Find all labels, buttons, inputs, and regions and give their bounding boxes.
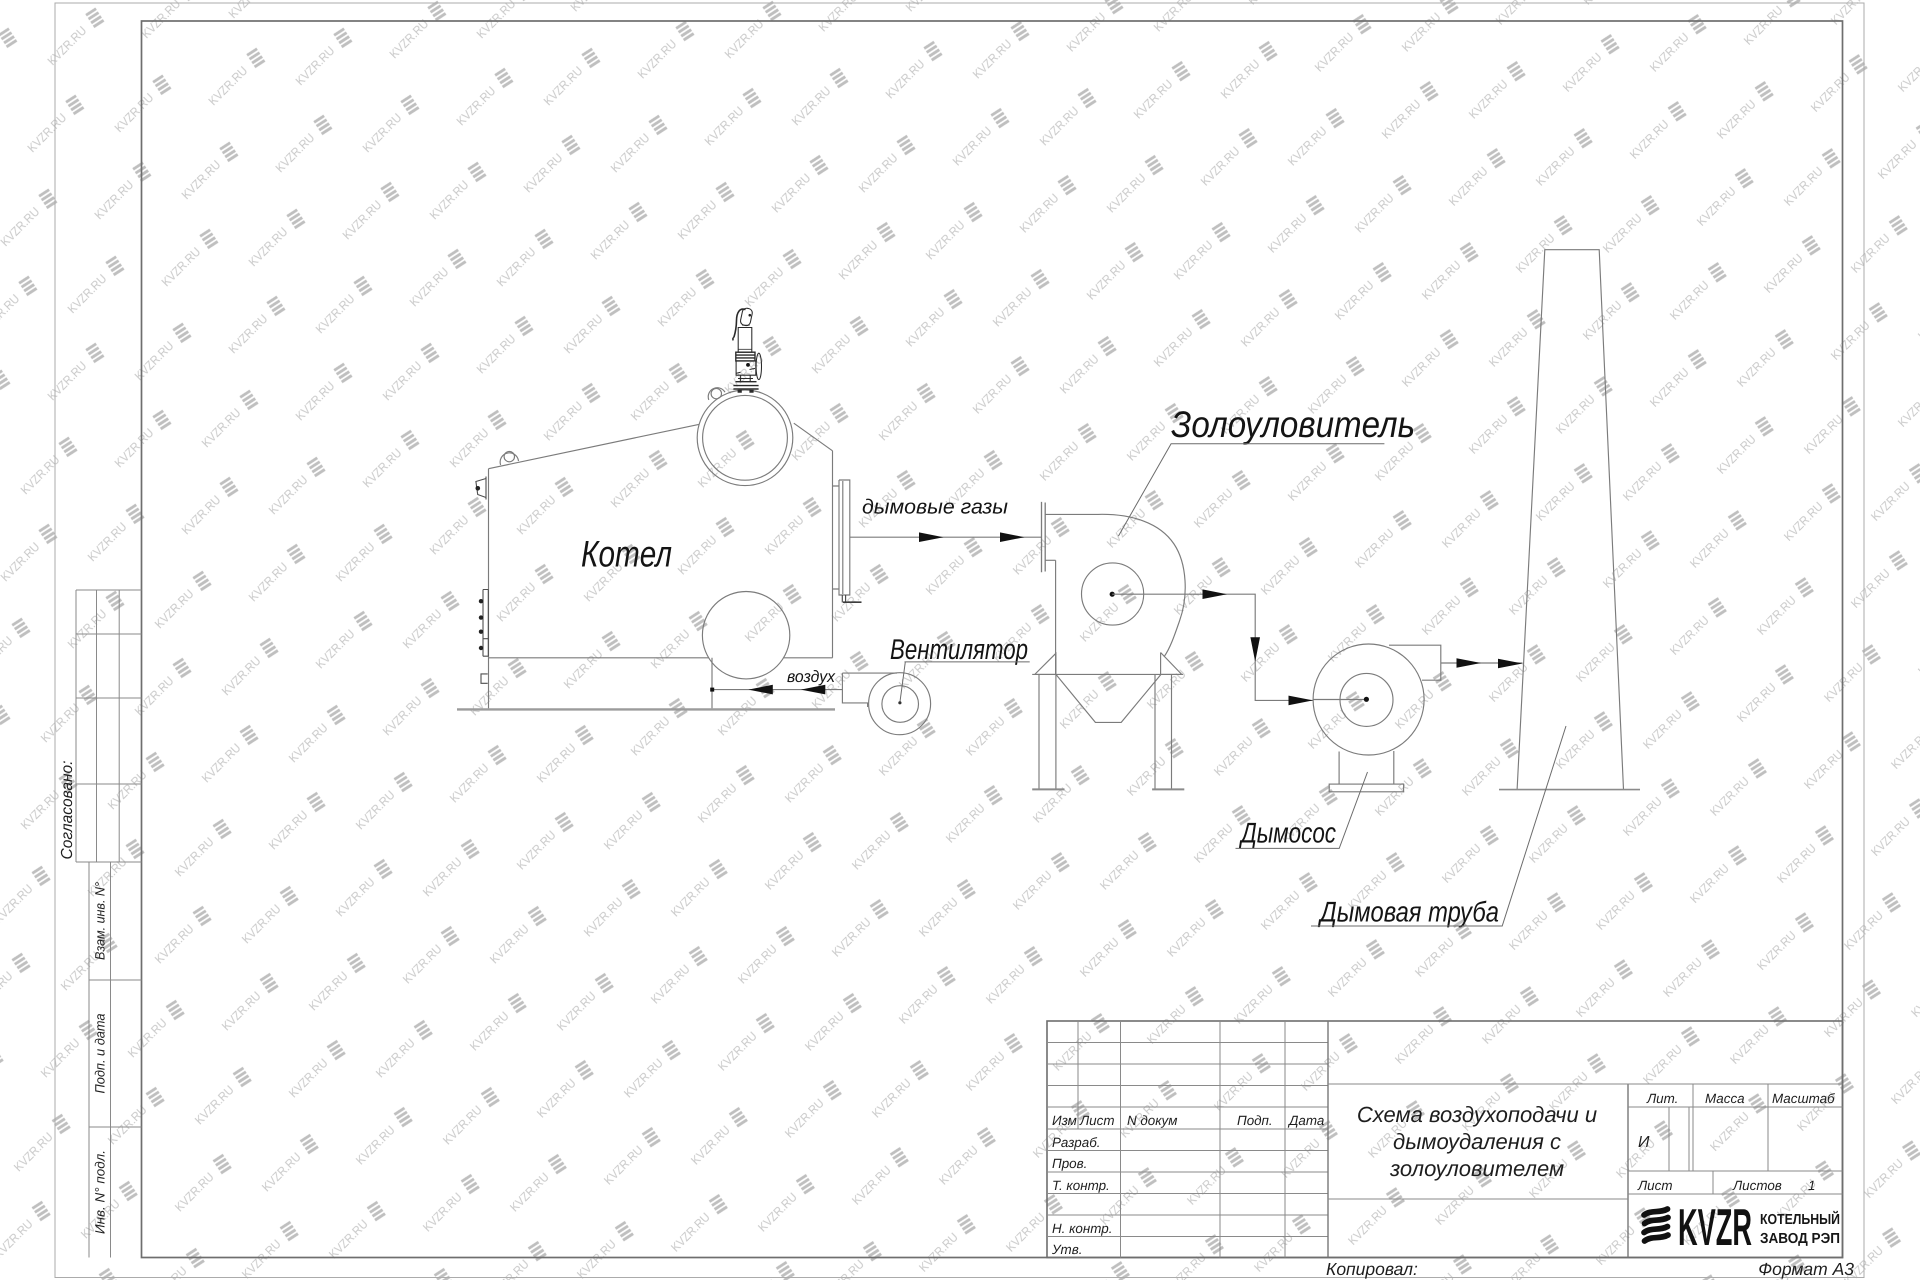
- svg-text:Взам. инв. N°: Взам. инв. N°: [93, 881, 108, 960]
- svg-text:КОТЕЛЬНЫЙ: КОТЕЛЬНЫЙ: [1760, 1210, 1840, 1228]
- svg-text:ЗАВОД РЭП: ЗАВОД РЭП: [1760, 1231, 1840, 1247]
- svg-text:Т. контр.: Т. контр.: [1052, 1178, 1110, 1193]
- svg-text:Лит.: Лит.: [1646, 1091, 1678, 1106]
- svg-text:Дымосос: Дымосос: [1239, 818, 1336, 850]
- svg-text:Подп.: Подп.: [1237, 1113, 1273, 1128]
- svg-text:Согласовано:: Согласовано:: [59, 761, 76, 860]
- svg-text:Утв.: Утв.: [1051, 1242, 1082, 1257]
- svg-text:KVZR: KVZR: [1678, 1199, 1752, 1257]
- svg-text:золоуловителем: золоуловителем: [1389, 1156, 1564, 1181]
- svg-text:Листов: Листов: [1732, 1178, 1782, 1193]
- svg-text:Масса: Масса: [1705, 1091, 1745, 1106]
- svg-text:Копировал:: Копировал:: [1326, 1259, 1418, 1279]
- svg-text:Дата: Дата: [1287, 1113, 1324, 1128]
- svg-text:воздух: воздух: [787, 668, 836, 686]
- svg-text:Вентилятор: Вентилятор: [890, 634, 1028, 666]
- svg-text:N докум: N докум: [1127, 1113, 1177, 1128]
- svg-text:дымовые газы: дымовые газы: [862, 496, 1008, 519]
- svg-text:Инв. N° подл.: Инв. N° подл.: [93, 1150, 108, 1234]
- svg-text:Лист: Лист: [1637, 1178, 1672, 1193]
- svg-text:Дымовая труба: Дымовая труба: [1317, 897, 1499, 929]
- svg-text:Разраб.: Разраб.: [1052, 1135, 1100, 1150]
- svg-text:Подп. и дата: Подп. и дата: [93, 1013, 108, 1093]
- svg-text:Лист: Лист: [1079, 1113, 1114, 1128]
- svg-text:1: 1: [1808, 1178, 1815, 1193]
- svg-text:Золоуловитель: Золоуловитель: [1171, 404, 1415, 445]
- svg-text:Н. контр.: Н. контр.: [1052, 1221, 1112, 1236]
- svg-text:Котел: Котел: [581, 534, 672, 575]
- svg-text:Изм: Изм: [1052, 1113, 1077, 1128]
- svg-text:Пров.: Пров.: [1052, 1156, 1087, 1171]
- svg-text:Формат А3: Формат А3: [1758, 1259, 1854, 1279]
- svg-text:Схема воздухоподачи и: Схема воздухоподачи и: [1357, 1102, 1597, 1127]
- svg-text:И: И: [1638, 1134, 1650, 1151]
- svg-text:дымоудаления с: дымоудаления с: [1393, 1129, 1561, 1154]
- svg-text:Масштаб: Масштаб: [1772, 1091, 1835, 1106]
